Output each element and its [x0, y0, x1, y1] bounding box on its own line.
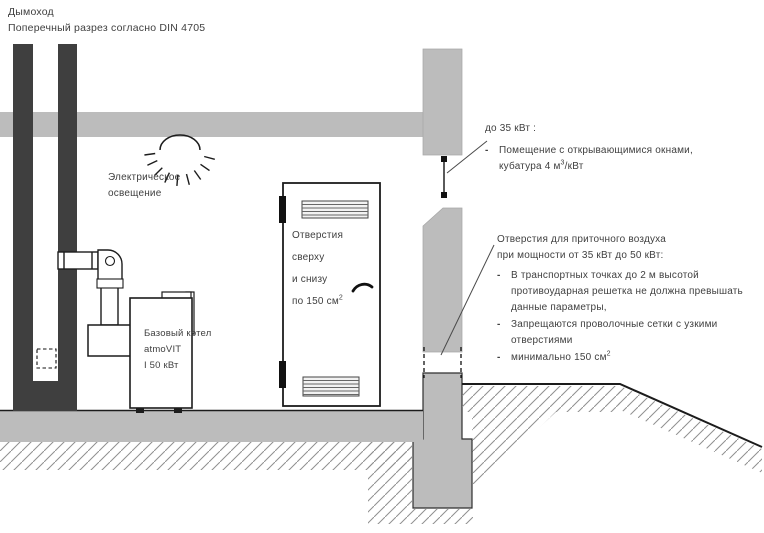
chimney-right-wall	[58, 44, 77, 411]
right-wall-upper	[423, 49, 462, 155]
door-vent-grille-top	[302, 201, 368, 218]
boiler-label: Базовый котел atmoVIT I 50 кВт	[144, 326, 211, 374]
flue-draft-hood	[88, 325, 132, 356]
chimney-base	[33, 381, 58, 411]
right-wall-middle	[423, 208, 462, 352]
note-35-to-50kw: Отверстия для приточного воздуха при мощ…	[497, 232, 763, 366]
list-item: - минимально 150 см2	[497, 350, 763, 366]
floor-slab	[0, 411, 423, 442]
boiler-foot-left	[136, 408, 144, 413]
note-35-50-title-2: при мощности от 35 кВт до 50 кВт:	[497, 248, 763, 264]
list-item: - Запрещаются проволочные сетки с узкими…	[497, 317, 763, 349]
title-line-2: Поперечный разрез согласно DIN 4705	[8, 20, 205, 36]
boiler-room-cross-section-diagram: Дымоход Поперечный разрез согласно DIN 4…	[0, 0, 764, 533]
note-35-50-title-1: Отверстия для приточного воздуха	[497, 232, 763, 248]
boiler-foot-right	[174, 408, 182, 413]
chimney-cleanout-opening	[37, 349, 56, 368]
door-vent-grille-bottom	[303, 377, 359, 396]
title-line-1: Дымоход	[8, 4, 205, 20]
list-item: - Помещение с открывающимися окнами, куб…	[485, 143, 753, 175]
chimney	[13, 44, 77, 411]
door-openings-label: Отверстия сверху и снизу по 150 см2	[292, 228, 343, 316]
diagram-title: Дымоход Поперечный разрез согласно DIN 4…	[8, 4, 205, 36]
door-hinge-bottom	[279, 361, 286, 388]
ground-hatching	[0, 385, 762, 524]
list-item: - В транспортных точках до 2 м высотой п…	[497, 268, 763, 316]
upper-air-vent	[441, 156, 447, 198]
door-hinge-top	[279, 196, 286, 223]
flue-pipe-collar	[97, 279, 123, 288]
chimney-left-wall	[13, 44, 33, 411]
note-up-to-35kw: до 35 кВт : - Помещение с открывающимися…	[485, 121, 753, 175]
lighting-label: Электрическое освещение	[108, 170, 180, 202]
note-up-to-35kw-title: до 35 кВт :	[485, 121, 753, 137]
